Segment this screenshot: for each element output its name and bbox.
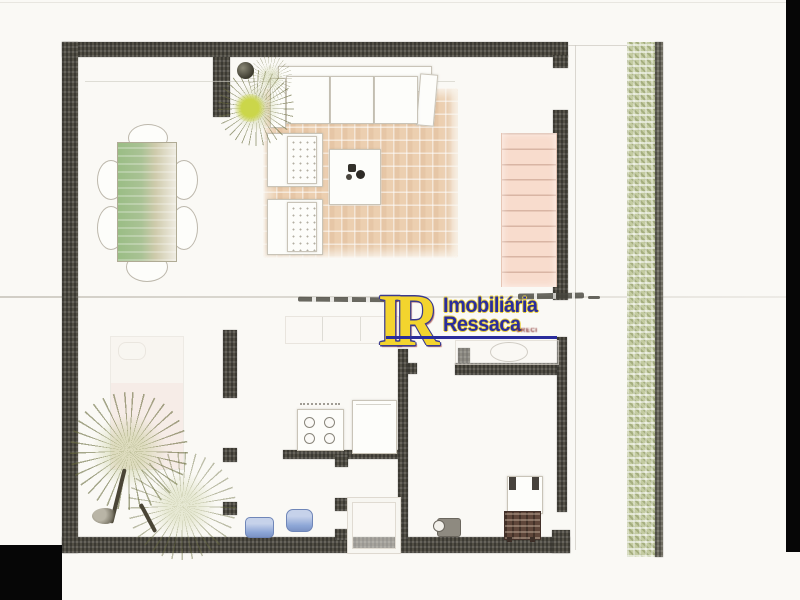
- water-heater-post: [509, 477, 516, 490]
- scan-top-edge-line: [0, 2, 800, 3]
- wall-corner-block: [552, 530, 570, 553]
- sofa-cushion: [330, 76, 374, 124]
- floor-plan-scan: IR Imobiliária Ressaca CRECI: [0, 0, 800, 600]
- wall-right-upper-stub: [553, 55, 568, 68]
- hedge-edge-wall: [655, 42, 663, 557]
- coffee-table-decor: [348, 164, 356, 172]
- agency-logo-initials: IR: [378, 284, 431, 358]
- armchair-cushion: [287, 202, 317, 252]
- wardrobe-divider: [322, 317, 323, 341]
- bidet: [245, 517, 274, 538]
- counter-inner-line: [356, 404, 391, 405]
- coffee-table-decor: [346, 174, 352, 180]
- stove-burner: [324, 417, 335, 428]
- wardrobe-divider: [360, 317, 361, 341]
- wall-stub: [223, 448, 237, 462]
- armchair-cushion: [287, 136, 317, 184]
- agency-name-line2: Ressaca: [443, 314, 521, 335]
- stove: [297, 409, 344, 451]
- sofa-cushion: [374, 76, 418, 124]
- bathroom-basin: [490, 342, 528, 362]
- grill-leg: [530, 537, 535, 542]
- coffee-table: [329, 149, 381, 205]
- agency-creci-text: CRECI: [516, 328, 538, 334]
- potted-plant-fronds: [248, 56, 292, 100]
- stove-label-scribble: [300, 403, 340, 405]
- wall-bottom: [62, 537, 570, 553]
- wall-stub: [408, 363, 417, 374]
- grill: [504, 511, 541, 540]
- wall-top: [62, 42, 568, 57]
- shower: [347, 497, 401, 554]
- dining-table: [117, 142, 177, 262]
- washbasin: [286, 509, 313, 532]
- water-heater-post: [532, 477, 539, 490]
- pillow: [118, 342, 146, 360]
- kitchen-counter: [352, 400, 397, 454]
- plant-rocks: [92, 508, 118, 524]
- plant-pot: [237, 62, 254, 79]
- stove-burner: [324, 433, 335, 444]
- stove-burner: [304, 433, 315, 444]
- scan-tear-mark: [588, 296, 600, 299]
- staircase: [501, 133, 557, 287]
- stove-burner: [304, 417, 315, 428]
- potted-plant-foliage: [234, 94, 266, 122]
- scan-black-corner: [0, 545, 62, 600]
- coffee-table-decor: [356, 170, 365, 179]
- wall-bedroom: [223, 330, 237, 398]
- scan-black-strip: [786, 0, 800, 552]
- faucet-knob: [433, 520, 445, 532]
- hedge-strip: [627, 42, 655, 557]
- terrace-edge-line-h: [568, 45, 628, 46]
- agency-logo-underline: [386, 336, 557, 339]
- door-jamb: [335, 455, 348, 467]
- grill-leg: [507, 537, 512, 542]
